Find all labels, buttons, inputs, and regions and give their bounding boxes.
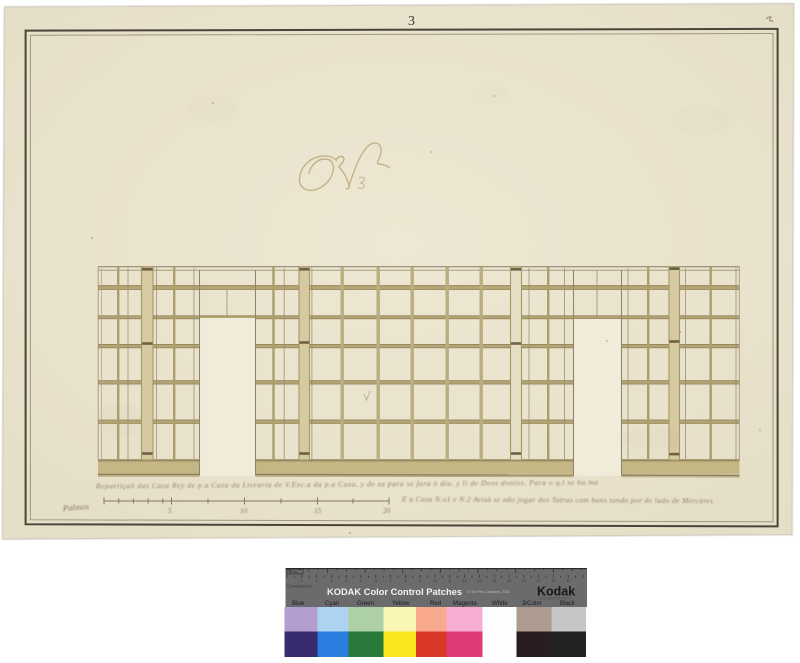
svg-text:3: 3 xyxy=(330,579,332,583)
svg-text:18: 18 xyxy=(551,579,555,583)
svg-text:10: 10 xyxy=(240,507,248,515)
svg-text:9: 9 xyxy=(419,579,421,583)
svg-text:8: 8 xyxy=(404,579,406,583)
svg-text:E a Caza N.o1 e N.2 Avisà se n: E a Caza N.o1 e N.2 Avisà se não jogar d… xyxy=(401,494,713,505)
svg-text:Black: Black xyxy=(560,600,576,607)
svg-text:13: 13 xyxy=(477,579,481,583)
svg-text:15: 15 xyxy=(507,579,511,583)
svg-text:7: 7 xyxy=(552,571,554,575)
svg-text:16: 16 xyxy=(522,579,526,583)
svg-text:2: 2 xyxy=(364,571,366,575)
svg-text:©The Film Company, 2000: ©The Film Company, 2000 xyxy=(467,590,510,594)
svg-text:Green: Green xyxy=(357,600,374,607)
svg-text:Blue: Blue xyxy=(292,600,305,607)
svg-text:Magenta: Magenta xyxy=(453,600,477,607)
svg-text:5: 5 xyxy=(360,579,362,583)
svg-text:4: 4 xyxy=(345,579,347,583)
svg-text:6: 6 xyxy=(515,571,517,575)
svg-text:2: 2 xyxy=(316,579,318,583)
svg-text:20: 20 xyxy=(383,507,391,515)
svg-text:Red: Red xyxy=(430,600,441,607)
svg-text:12: 12 xyxy=(462,579,466,583)
svg-text:Palmos: Palmos xyxy=(61,501,90,513)
svg-text:3: 3 xyxy=(402,571,404,575)
svg-text:11: 11 xyxy=(448,579,452,583)
svg-text:1: 1 xyxy=(301,579,303,583)
svg-text:Yellow: Yellow xyxy=(392,600,410,607)
svg-text:1: 1 xyxy=(327,571,329,575)
svg-text:4: 4 xyxy=(440,571,442,575)
svg-text:5: 5 xyxy=(168,507,172,515)
svg-text:10: 10 xyxy=(433,579,437,583)
svg-text:White: White xyxy=(492,600,508,607)
svg-text:14: 14 xyxy=(492,579,496,583)
svg-text:Cyan: Cyan xyxy=(325,600,339,607)
svg-text:15: 15 xyxy=(314,507,322,515)
svg-text:3: 3 xyxy=(408,14,415,29)
svg-text:7: 7 xyxy=(390,579,392,583)
svg-text:19: 19 xyxy=(566,579,570,583)
svg-text:6: 6 xyxy=(375,579,377,583)
svg-text:Centimetres: Centimetres xyxy=(287,584,312,589)
svg-text:5: 5 xyxy=(477,571,479,575)
svg-text:3/Color: 3/Color xyxy=(522,600,542,607)
svg-text:KODAK Color Control Patches: KODAK Color Control Patches xyxy=(327,586,462,597)
svg-text:17: 17 xyxy=(536,579,540,583)
